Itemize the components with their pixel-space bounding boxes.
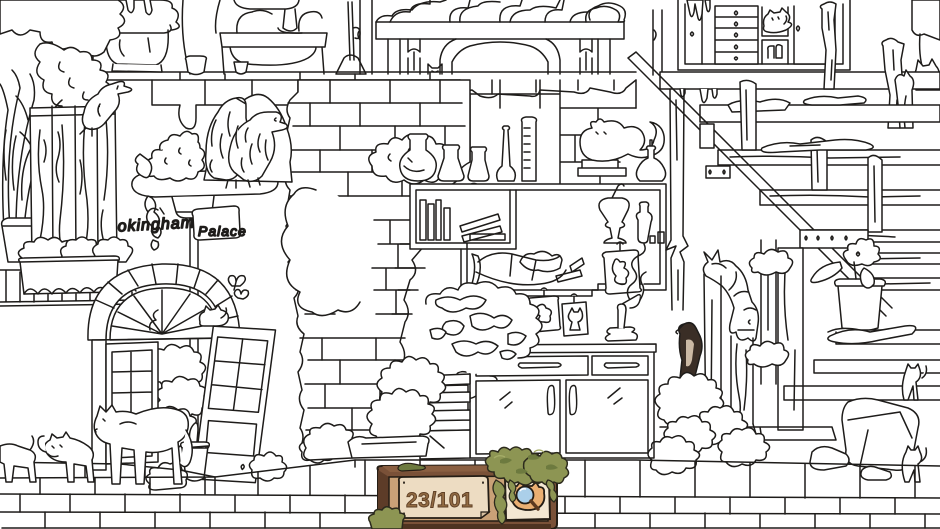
svg-text:23/101: 23/101	[406, 489, 473, 512]
svg-text:Palace: Palace	[198, 223, 247, 239]
